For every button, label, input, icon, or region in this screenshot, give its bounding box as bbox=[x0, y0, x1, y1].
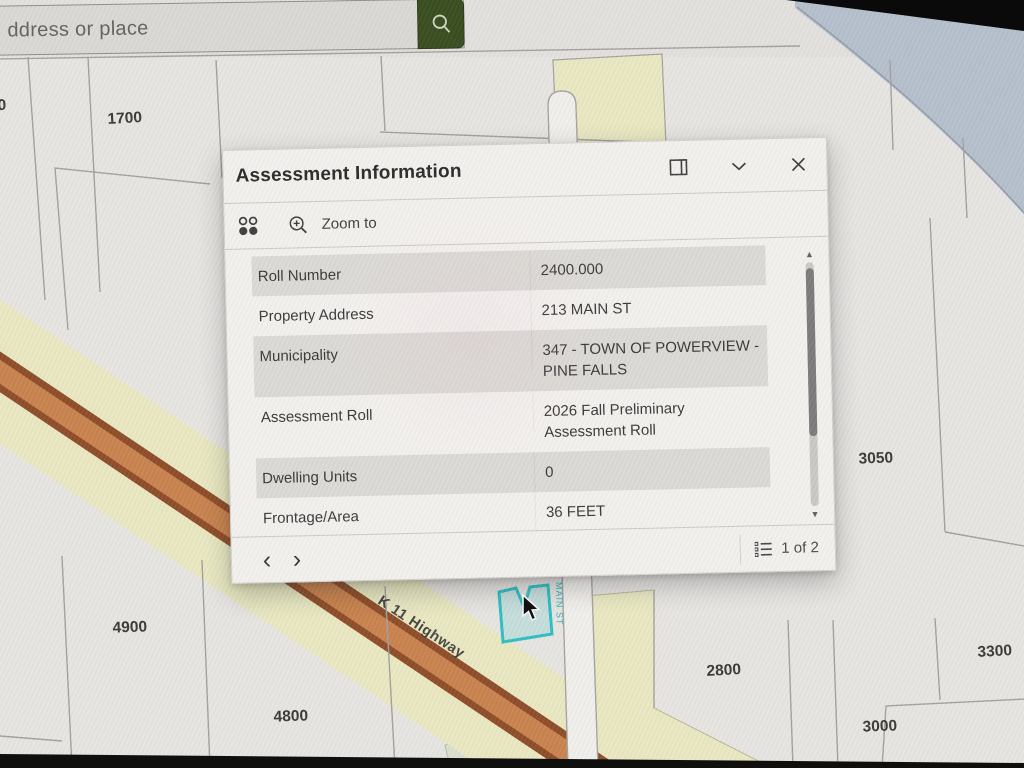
parcel-label-1700: 1700 bbox=[107, 109, 142, 128]
row-label: Frontage/Area bbox=[257, 492, 537, 536]
next-feature-button[interactable]: › bbox=[282, 549, 312, 570]
scroll-up-icon[interactable]: ▲ bbox=[800, 248, 818, 260]
row-label: Municipality bbox=[253, 330, 533, 376]
feature-pagination[interactable]: 1 of 2 bbox=[740, 533, 819, 565]
chevron-down-icon[interactable] bbox=[728, 156, 748, 176]
feature-list-icon bbox=[755, 541, 772, 557]
row-value: 2026 Fall Preliminary Assessment Roll bbox=[533, 386, 769, 452]
table-row: Municipality 347 - TOWN OF POWERVIEW - P… bbox=[253, 325, 768, 397]
assessment-panel: Assessment Information bbox=[222, 137, 836, 584]
row-label: Property Address bbox=[252, 290, 532, 336]
zoom-in-icon bbox=[287, 214, 309, 236]
previous-feature-button[interactable]: ‹ bbox=[252, 549, 282, 570]
parcel-label-4900: 4900 bbox=[112, 618, 147, 636]
screen: MAIN ST K 11 Highway 0 1700 3050 4900 48… bbox=[0, 0, 1024, 768]
row-value: 0 bbox=[535, 447, 771, 492]
table-row: Assessment Roll 2026 Fall Preliminary As… bbox=[254, 386, 769, 458]
row-value: 2400.000 bbox=[530, 245, 766, 290]
street-label: MAIN ST bbox=[554, 582, 565, 626]
fields-grid-button[interactable] bbox=[236, 214, 259, 237]
dock-icon[interactable] bbox=[668, 157, 688, 177]
panel-title: Assessment Information bbox=[235, 157, 628, 188]
search-bar: ddress or place bbox=[0, 0, 465, 56]
attribute-table: Roll Number 2400.000 Property Address 21… bbox=[251, 245, 771, 536]
grid-circles-icon bbox=[236, 214, 259, 237]
parcel-label-3050: 3050 bbox=[858, 449, 893, 467]
row-value: 347 - TOWN OF POWERVIEW - PINE FALLS bbox=[532, 325, 768, 391]
parcel-label-3300: 3300 bbox=[977, 642, 1012, 661]
zoom-to-button[interactable]: Zoom to bbox=[287, 212, 376, 236]
search-button[interactable] bbox=[417, 0, 465, 49]
page-indicator: 1 of 2 bbox=[781, 539, 819, 557]
row-value: 213 MAIN ST bbox=[531, 285, 767, 330]
search-input[interactable]: ddress or place bbox=[0, 0, 465, 56]
row-label: Assessment Roll bbox=[254, 391, 534, 437]
search-icon bbox=[429, 12, 453, 36]
row-label: Roll Number bbox=[251, 250, 531, 296]
scrollbar-thumb[interactable] bbox=[806, 268, 818, 436]
zoom-to-label: Zoom to bbox=[319, 215, 376, 233]
scroll-down-icon[interactable]: ▼ bbox=[806, 508, 824, 520]
row-label: Dwelling Units bbox=[256, 452, 536, 498]
parcel-label-0: 0 bbox=[0, 97, 6, 114]
parcel-label-4800: 4800 bbox=[273, 707, 308, 725]
scrollbar: ▲ ▼ bbox=[800, 248, 824, 520]
parcel-label-3000: 3000 bbox=[862, 717, 897, 735]
parcel-label-2800: 2800 bbox=[706, 661, 741, 680]
close-icon[interactable] bbox=[788, 154, 808, 174]
